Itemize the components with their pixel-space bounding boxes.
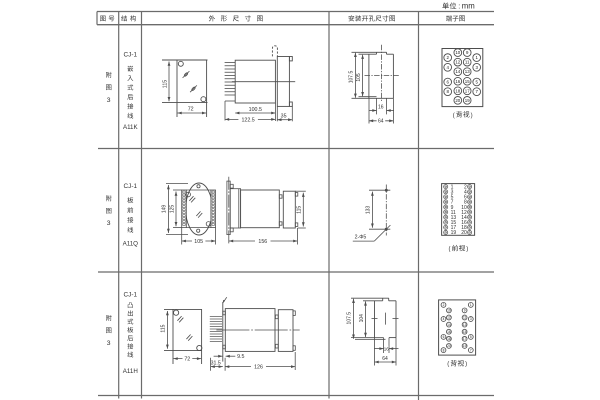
svg-text:10: 10 (455, 50, 460, 55)
svg-text:15: 15 (465, 79, 470, 84)
svg-text:2-Φ5: 2-Φ5 (355, 235, 367, 241)
svg-text:20: 20 (461, 230, 467, 236)
svg-text:mm: mm (462, 1, 475, 10)
svg-text:3: 3 (475, 65, 478, 70)
svg-text:19: 19 (463, 344, 467, 348)
svg-text:72: 72 (188, 107, 194, 113)
svg-text:(: ( (453, 113, 455, 119)
svg-text:115: 115 (162, 80, 168, 88)
svg-text:9.5: 9.5 (237, 354, 244, 360)
svg-text:19: 19 (451, 230, 457, 236)
svg-text:7: 7 (475, 89, 478, 94)
svg-text:13: 13 (465, 69, 470, 74)
svg-text:6: 6 (446, 80, 449, 85)
svg-text:A11H: A11H (123, 368, 138, 375)
svg-text:(: ( (449, 247, 451, 253)
svg-text:64: 64 (378, 119, 384, 125)
svg-text:2: 2 (443, 303, 445, 307)
svg-text:13: 13 (463, 323, 467, 327)
svg-text:105: 105 (194, 239, 203, 245)
svg-text:17: 17 (465, 88, 470, 93)
svg-text:3: 3 (107, 220, 111, 227)
svg-text:8: 8 (443, 348, 445, 352)
svg-text:126: 126 (254, 365, 263, 371)
svg-text:20: 20 (447, 344, 451, 348)
svg-text:4: 4 (443, 317, 445, 321)
svg-text:1: 1 (475, 55, 478, 60)
svg-text:72: 72 (184, 357, 190, 363)
svg-text:104: 104 (359, 314, 365, 323)
svg-text:64: 64 (382, 356, 388, 362)
svg-text:15: 15 (463, 330, 467, 334)
svg-text::: : (458, 1, 460, 10)
svg-text:115: 115 (161, 324, 167, 332)
svg-text:115: 115 (297, 206, 303, 214)
svg-text:12: 12 (455, 60, 460, 65)
svg-text:8: 8 (446, 89, 449, 94)
svg-text:125: 125 (169, 205, 175, 214)
svg-text:4: 4 (446, 65, 449, 70)
svg-text:11: 11 (465, 60, 470, 65)
svg-text:): ) (465, 362, 467, 368)
svg-text:122.5: 122.5 (241, 117, 254, 123)
svg-text:3: 3 (107, 97, 111, 104)
svg-text:149: 149 (162, 205, 168, 214)
svg-text:2: 2 (446, 55, 449, 60)
svg-text:7: 7 (470, 348, 472, 352)
svg-text:3: 3 (470, 317, 472, 321)
svg-text:20: 20 (455, 98, 460, 103)
svg-text:16: 16 (378, 105, 384, 111)
svg-text:35: 35 (281, 113, 287, 119)
svg-text:CJ-1: CJ-1 (124, 292, 138, 299)
svg-text:16: 16 (455, 79, 460, 84)
svg-text:156: 156 (258, 239, 267, 245)
svg-text:107.5: 107.5 (347, 312, 353, 325)
svg-text:(: ( (447, 362, 449, 368)
svg-text:14: 14 (447, 323, 451, 327)
svg-text:): ) (471, 113, 473, 119)
svg-text:14: 14 (455, 69, 460, 74)
svg-text:18: 18 (455, 88, 460, 93)
svg-text:A11K: A11K (123, 124, 139, 131)
svg-text:5: 5 (470, 335, 472, 339)
svg-text:): ) (466, 247, 468, 253)
svg-text:5: 5 (475, 80, 478, 85)
svg-text:16: 16 (447, 330, 451, 334)
svg-text:12: 12 (447, 316, 451, 320)
svg-text:9: 9 (464, 309, 466, 313)
svg-text:105: 105 (356, 73, 362, 82)
svg-text:9: 9 (466, 50, 469, 55)
svg-text:3: 3 (107, 340, 111, 347)
svg-text:100.5: 100.5 (249, 107, 262, 113)
svg-text:17: 17 (463, 337, 467, 341)
svg-text:18: 18 (447, 337, 451, 341)
svg-text:133: 133 (366, 206, 372, 215)
svg-text:6: 6 (443, 335, 445, 339)
svg-text:31.5: 31.5 (211, 360, 221, 366)
svg-text:10: 10 (447, 309, 451, 313)
svg-text:CJ-1: CJ-1 (124, 51, 138, 58)
svg-text:107.5: 107.5 (348, 71, 354, 84)
svg-text:A11Q: A11Q (123, 240, 139, 247)
svg-text:CJ-1: CJ-1 (124, 183, 138, 190)
svg-text:11: 11 (463, 316, 467, 320)
svg-text:1: 1 (470, 303, 472, 307)
svg-text:19: 19 (465, 98, 470, 103)
svg-text:16: 16 (384, 347, 390, 352)
